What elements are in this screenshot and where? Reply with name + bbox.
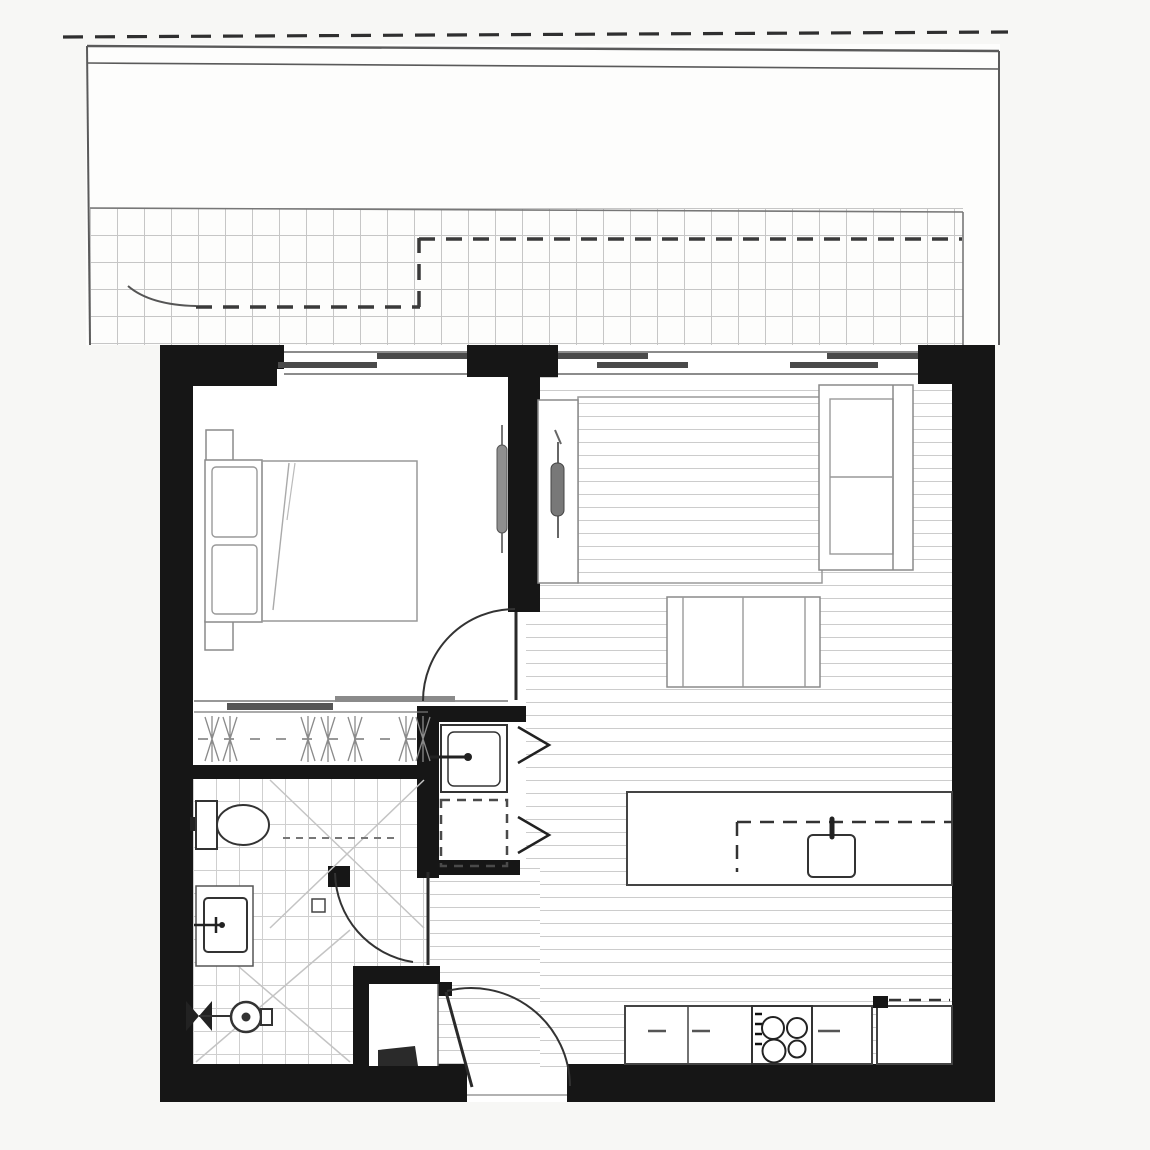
- laundry-cupboard: [430, 722, 549, 866]
- bedroom-window: [278, 346, 467, 383]
- coffee-table: [667, 597, 820, 687]
- fridge-space: [873, 996, 952, 1064]
- cooktop: [752, 1006, 812, 1064]
- shower-fitting: [186, 1001, 272, 1032]
- site-boundary-dashed-line: [63, 32, 1008, 37]
- entry-closet: [369, 984, 438, 1066]
- tv-unit: [538, 400, 578, 583]
- floor-drain: [312, 899, 325, 912]
- bedroom-tv: [497, 425, 507, 553]
- entry-door: [446, 988, 570, 1095]
- plan-linework: [0, 0, 1150, 1150]
- bedroom-bed: [205, 430, 417, 650]
- toilet: [190, 801, 269, 849]
- sofa: [819, 385, 913, 570]
- living-rug: [578, 397, 822, 583]
- living-window: [558, 346, 918, 383]
- bedroom-door: [423, 609, 516, 701]
- vanity-basin: [194, 886, 253, 966]
- balcony-outline: [87, 46, 999, 345]
- kitchen-counter: [625, 1006, 872, 1064]
- balcony-overhang-dashed-line: [128, 238, 962, 307]
- hanger-icons: [205, 716, 430, 762]
- kitchen-island: [627, 792, 952, 885]
